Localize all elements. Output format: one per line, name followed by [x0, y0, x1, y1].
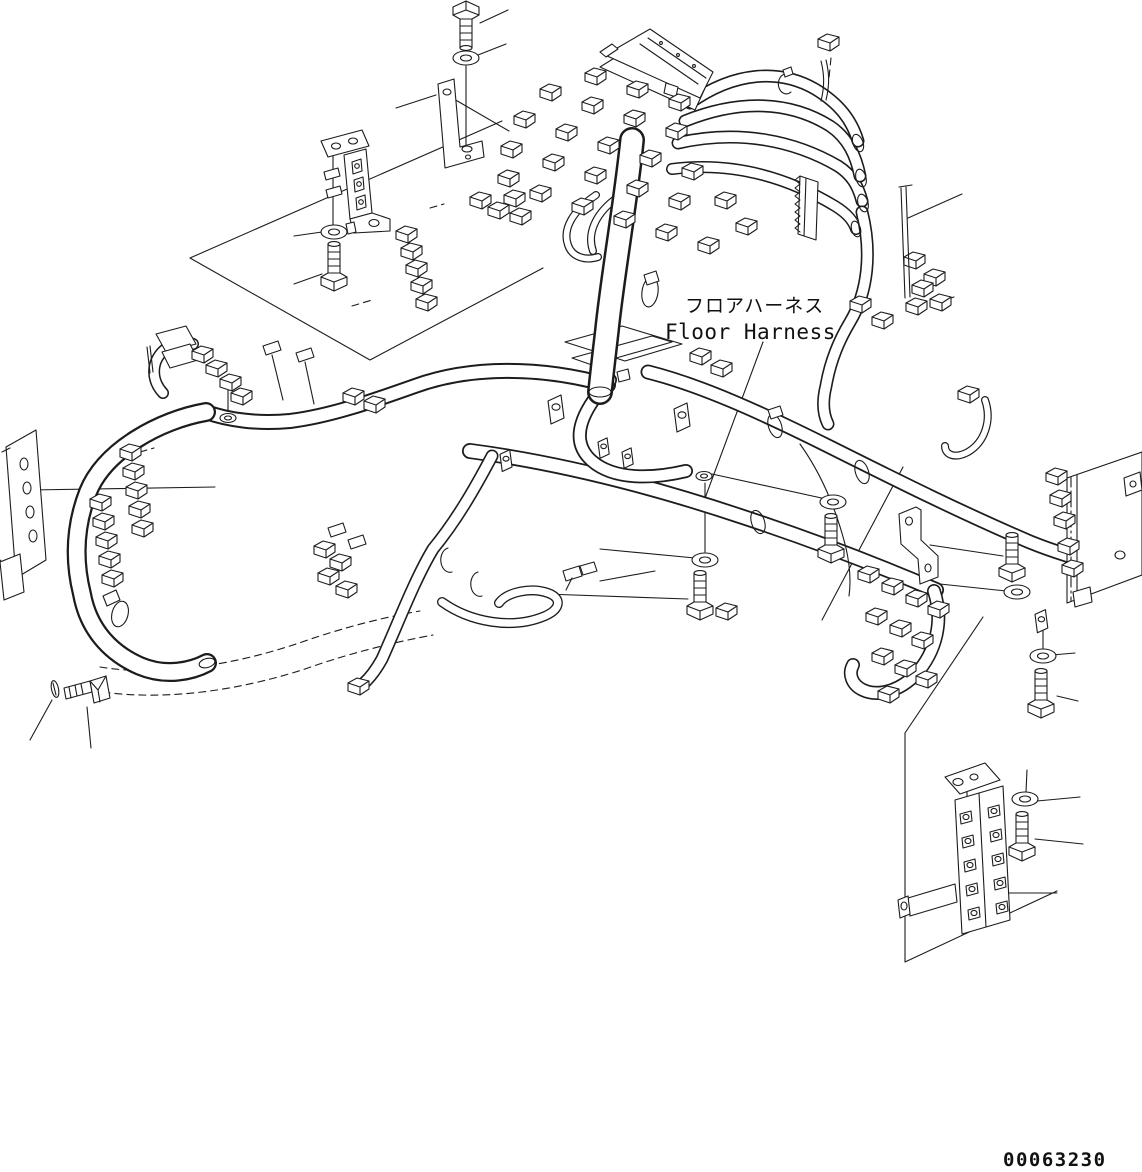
fuse-block-cover: [600, 29, 713, 110]
terminal-bracket-left: [321, 130, 390, 234]
comb-strip: [795, 176, 818, 240]
fuse-holder-block: [898, 763, 1010, 934]
part-number: 00063230: [1003, 1149, 1107, 1171]
bolt-horizontal: [64, 676, 110, 703]
leader-lines: [30, 10, 1083, 893]
floor-harness-diagram: フロアハーネス Floor Harness 00063230: [0, 0, 1142, 1172]
bolt-mid: [687, 571, 713, 620]
washer-right: [1004, 585, 1030, 599]
bolt-detail: [1009, 812, 1035, 861]
washer-right2: [1030, 649, 1056, 663]
harness-clamps: [103, 67, 872, 629]
bolt-right2: [1028, 669, 1054, 718]
washer-mid2: [820, 495, 846, 509]
bolt-top: [453, 1, 479, 50]
right-mount-panel: [1046, 452, 1142, 607]
terminal-pin: [899, 185, 912, 298]
parts-diagram-page: フロアハーネス Floor Harness 00063230: [0, 0, 1142, 1172]
left-flat-panel: [0, 430, 46, 600]
bolt-left: [321, 242, 347, 291]
l-bracket: [438, 79, 484, 168]
t-connector: [563, 562, 597, 590]
washer-left: [321, 225, 347, 239]
harness-label-en: Floor Harness: [665, 320, 836, 344]
cotter-pin: [50, 680, 60, 698]
washer-top: [453, 51, 479, 65]
left-harness-connectors: [90, 226, 437, 695]
washer-detail: [1012, 792, 1038, 806]
washer-mid: [692, 553, 718, 567]
harness-label-jp: フロアハーネス: [685, 295, 824, 317]
